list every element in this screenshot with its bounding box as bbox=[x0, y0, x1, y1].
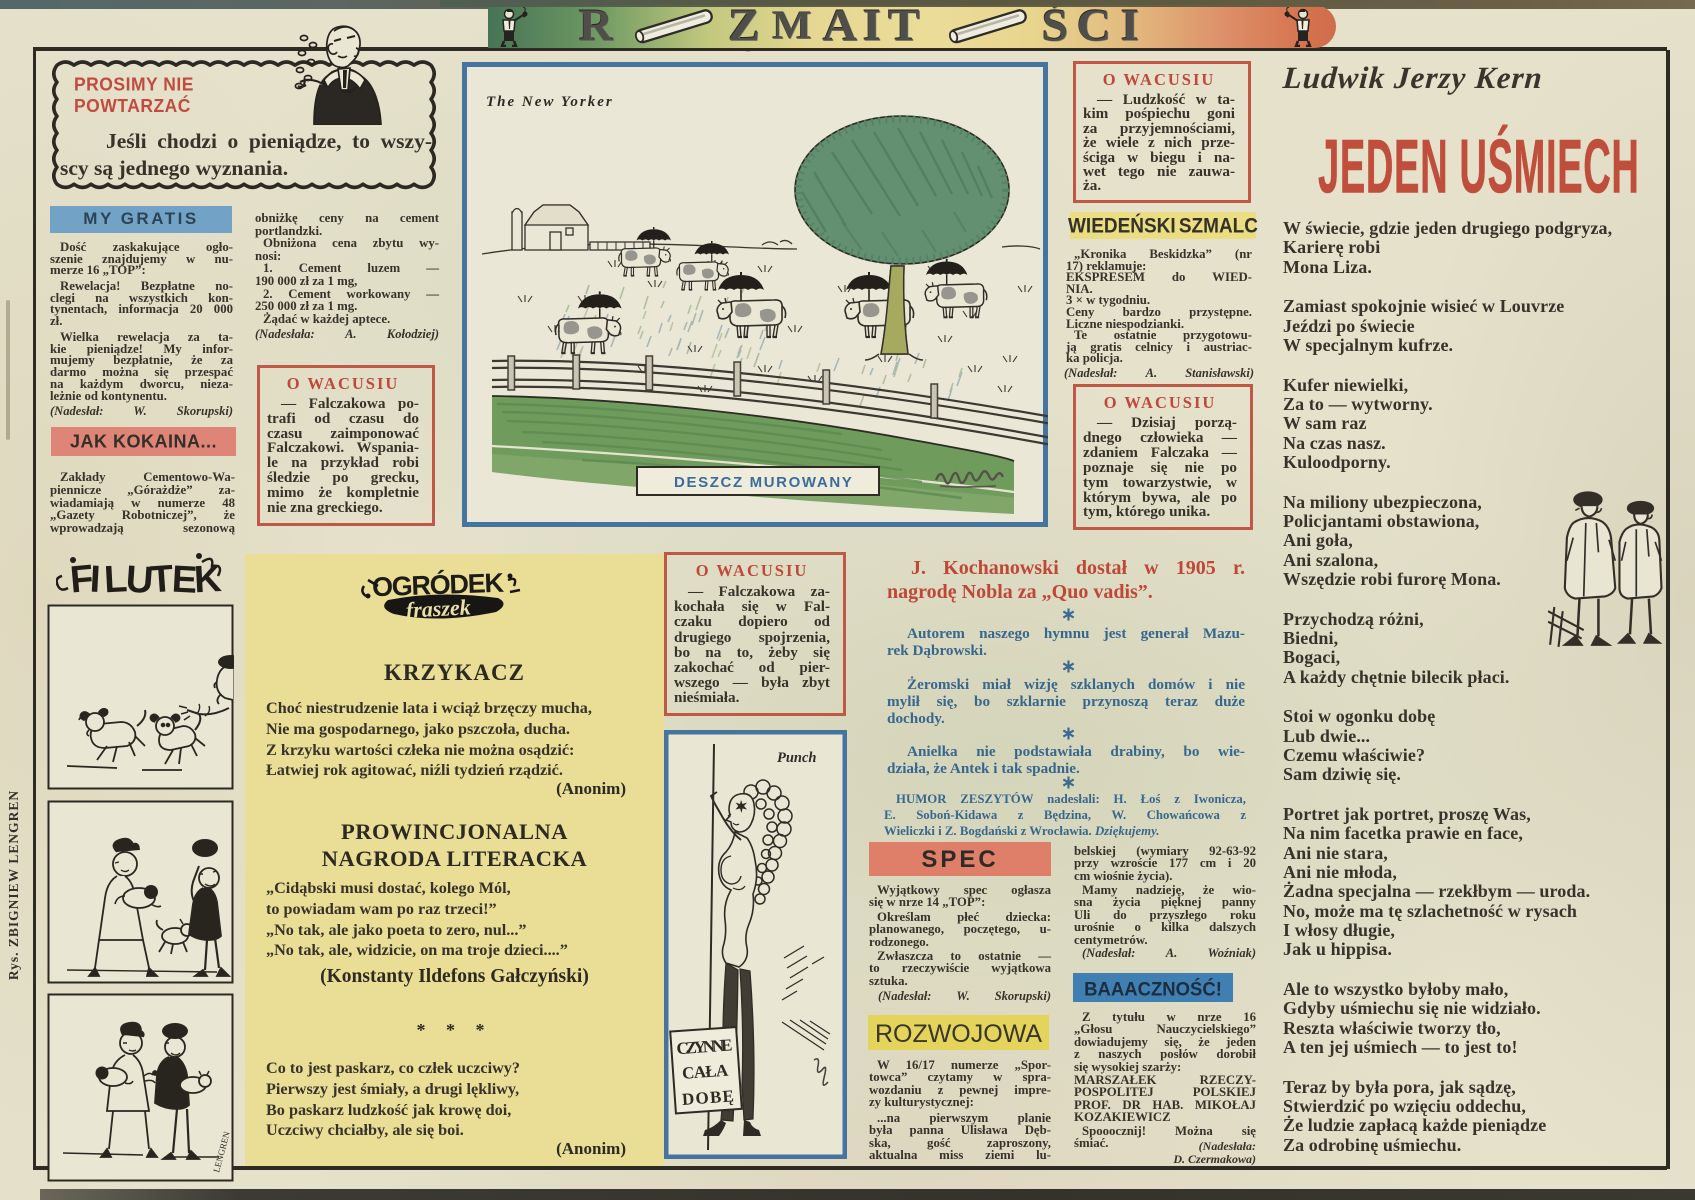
svg-text:K: K bbox=[193, 558, 223, 601]
svg-text:CAŁA: CAŁA bbox=[682, 1061, 730, 1083]
svg-text:CZYNNE: CZYNNE bbox=[676, 1035, 733, 1058]
svg-text:Punch: Punch bbox=[777, 750, 817, 766]
svg-text:The New Yorker: The New Yorker bbox=[486, 94, 614, 110]
svg-text:DESZCZ MUROWANY: DESZCZ MUROWANY bbox=[674, 474, 854, 491]
svg-text:I: I bbox=[89, 559, 102, 601]
svg-text:DOBĘ: DOBĘ bbox=[681, 1086, 734, 1109]
svg-text:fraszek: fraszek bbox=[405, 594, 471, 622]
